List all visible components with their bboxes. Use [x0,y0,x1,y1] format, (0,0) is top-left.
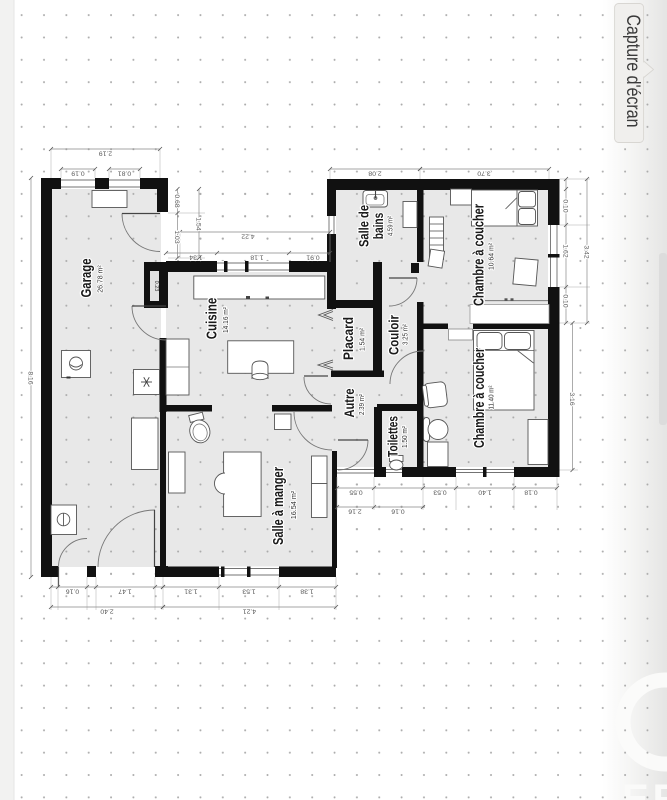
svg-text:3.70: 3.70 [477,169,490,176]
svg-text:1.38: 1.38 [300,587,313,594]
svg-text:0.10: 0.10 [562,294,569,307]
svg-text:4.22: 4.22 [241,232,254,239]
svg-text:3.42: 3.42 [583,245,590,258]
svg-text:Chambre à coucher: Chambre à coucher [471,348,488,448]
svg-text:2.40: 2.40 [100,607,113,614]
svg-text:1.40: 1.40 [478,488,491,495]
svg-text:1.54: 1.54 [195,217,202,230]
svg-text:0.16: 0.16 [391,507,404,514]
svg-text:3.16: 3.16 [568,392,575,405]
svg-text:4.21: 4.21 [243,607,256,614]
svg-text:Cuisine: Cuisine [204,298,221,340]
svg-text:2.16: 2.16 [348,507,361,514]
svg-text:1.62: 1.62 [562,244,569,257]
svg-text:10.64 m²: 10.64 m² [487,242,496,270]
svg-text:1.47: 1.47 [118,587,131,594]
svg-text:Capture d'écran: Capture d'écran [622,15,643,128]
svg-text:0.68: 0.68 [173,194,180,207]
svg-text:1.54 m²: 1.54 m² [360,327,367,351]
svg-text:2.19: 2.19 [99,149,112,156]
svg-text:16.54 m²: 16.54 m² [289,490,298,519]
svg-text:Autre: Autre [341,388,357,417]
svg-text:0.55: 0.55 [349,488,362,495]
svg-text:8.16: 8.16 [27,371,34,384]
svg-text:0.91: 0.91 [306,253,319,260]
svg-text:14.16 m²: 14.16 m² [221,306,230,333]
svg-text:11.40 m²: 11.40 m² [487,385,496,410]
svg-text:4.59 m²: 4.59 m² [388,215,395,236]
svg-text:0.18: 0.18 [524,488,537,495]
svg-text:bains: bains [370,213,386,240]
svg-text:1.31: 1.31 [184,587,197,594]
svg-text:0.23: 0.23 [153,281,159,292]
svg-text:3.25 m²: 3.25 m² [403,323,410,345]
svg-text:0.81: 0.81 [118,169,131,176]
svg-text:Couloir: Couloir [386,315,402,355]
svg-text:0.19: 0.19 [71,169,84,176]
svg-text:1.50 m²: 1.50 m² [402,425,409,448]
svg-text:Salle à manger: Salle à manger [270,467,287,545]
svg-text:Chambre à coucher: Chambre à coucher [471,204,488,306]
svg-text:0.16: 0.16 [66,587,79,594]
svg-text:1.53: 1.53 [242,587,255,594]
svg-text:1.18: 1.18 [250,253,263,260]
svg-text:0.10: 0.10 [562,199,569,212]
svg-text:Garage: Garage [78,259,95,298]
svg-text:Toilettes: Toilettes [385,416,401,457]
svg-text:Placard: Placard [340,317,356,360]
svg-text:26.78 m²: 26.78 m² [96,265,105,293]
svg-text:1.03: 1.03 [173,230,180,243]
svg-text:0.53: 0.53 [433,488,446,495]
svg-text:2.39 m²: 2.39 m² [359,393,366,415]
svg-text:2.08: 2.08 [368,169,381,176]
